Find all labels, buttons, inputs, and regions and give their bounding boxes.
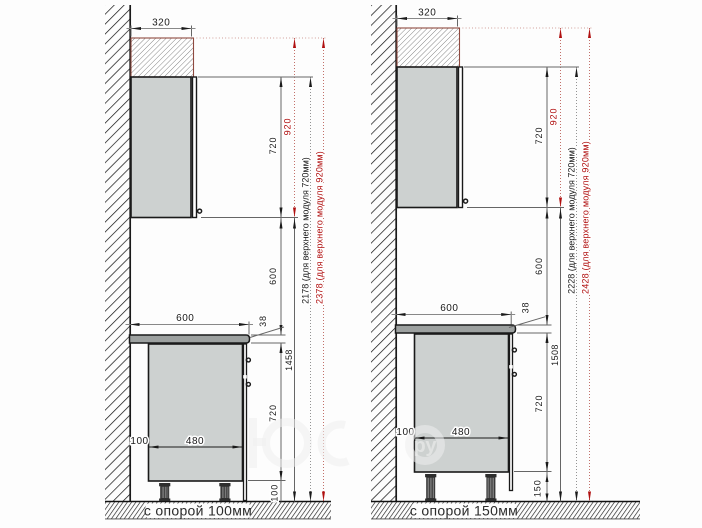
svg-text:2178 (для верхнего модуля 720: 2178 (для верхнего модуля 720мм)	[301, 157, 311, 304]
svg-text:720: 720	[268, 137, 278, 155]
svg-text:720: 720	[268, 404, 278, 422]
svg-text:600: 600	[268, 267, 278, 285]
svg-text:38: 38	[521, 302, 531, 314]
svg-text:480: 480	[186, 436, 204, 447]
svg-text:100: 100	[270, 484, 280, 502]
svg-text:38: 38	[258, 315, 268, 327]
svg-text:920: 920	[282, 118, 292, 136]
svg-text:2428 (для верхнего модуля 920м: 2428 (для верхнего модуля 920мм)	[581, 141, 591, 294]
svg-text:920: 920	[548, 108, 558, 126]
svg-text:1508: 1508	[550, 344, 560, 366]
svg-text:600: 600	[534, 257, 544, 275]
svg-text:320: 320	[152, 18, 170, 29]
svg-text:с опорой 150мм: с опорой 150мм	[410, 503, 518, 519]
svg-text:600: 600	[176, 313, 194, 324]
svg-text:150: 150	[533, 479, 543, 497]
svg-text:1458: 1458	[284, 349, 294, 371]
svg-text:2228 (для верхнего модуля 720: 2228 (для верхнего модуля 720мм)	[567, 147, 577, 294]
svg-text:2378 (для верхнего модуля 920м: 2378 (для верхнего модуля 920мм)	[315, 151, 325, 304]
svg-text:600: 600	[440, 303, 458, 314]
svg-text:ру: ру	[413, 435, 437, 457]
svg-text:480: 480	[452, 427, 470, 438]
svg-text:720: 720	[534, 395, 544, 413]
svg-text:с опорой 100мм: с опорой 100мм	[144, 503, 252, 519]
svg-text:320: 320	[418, 8, 436, 19]
svg-text:100: 100	[130, 436, 148, 447]
svg-text:720: 720	[534, 127, 544, 145]
